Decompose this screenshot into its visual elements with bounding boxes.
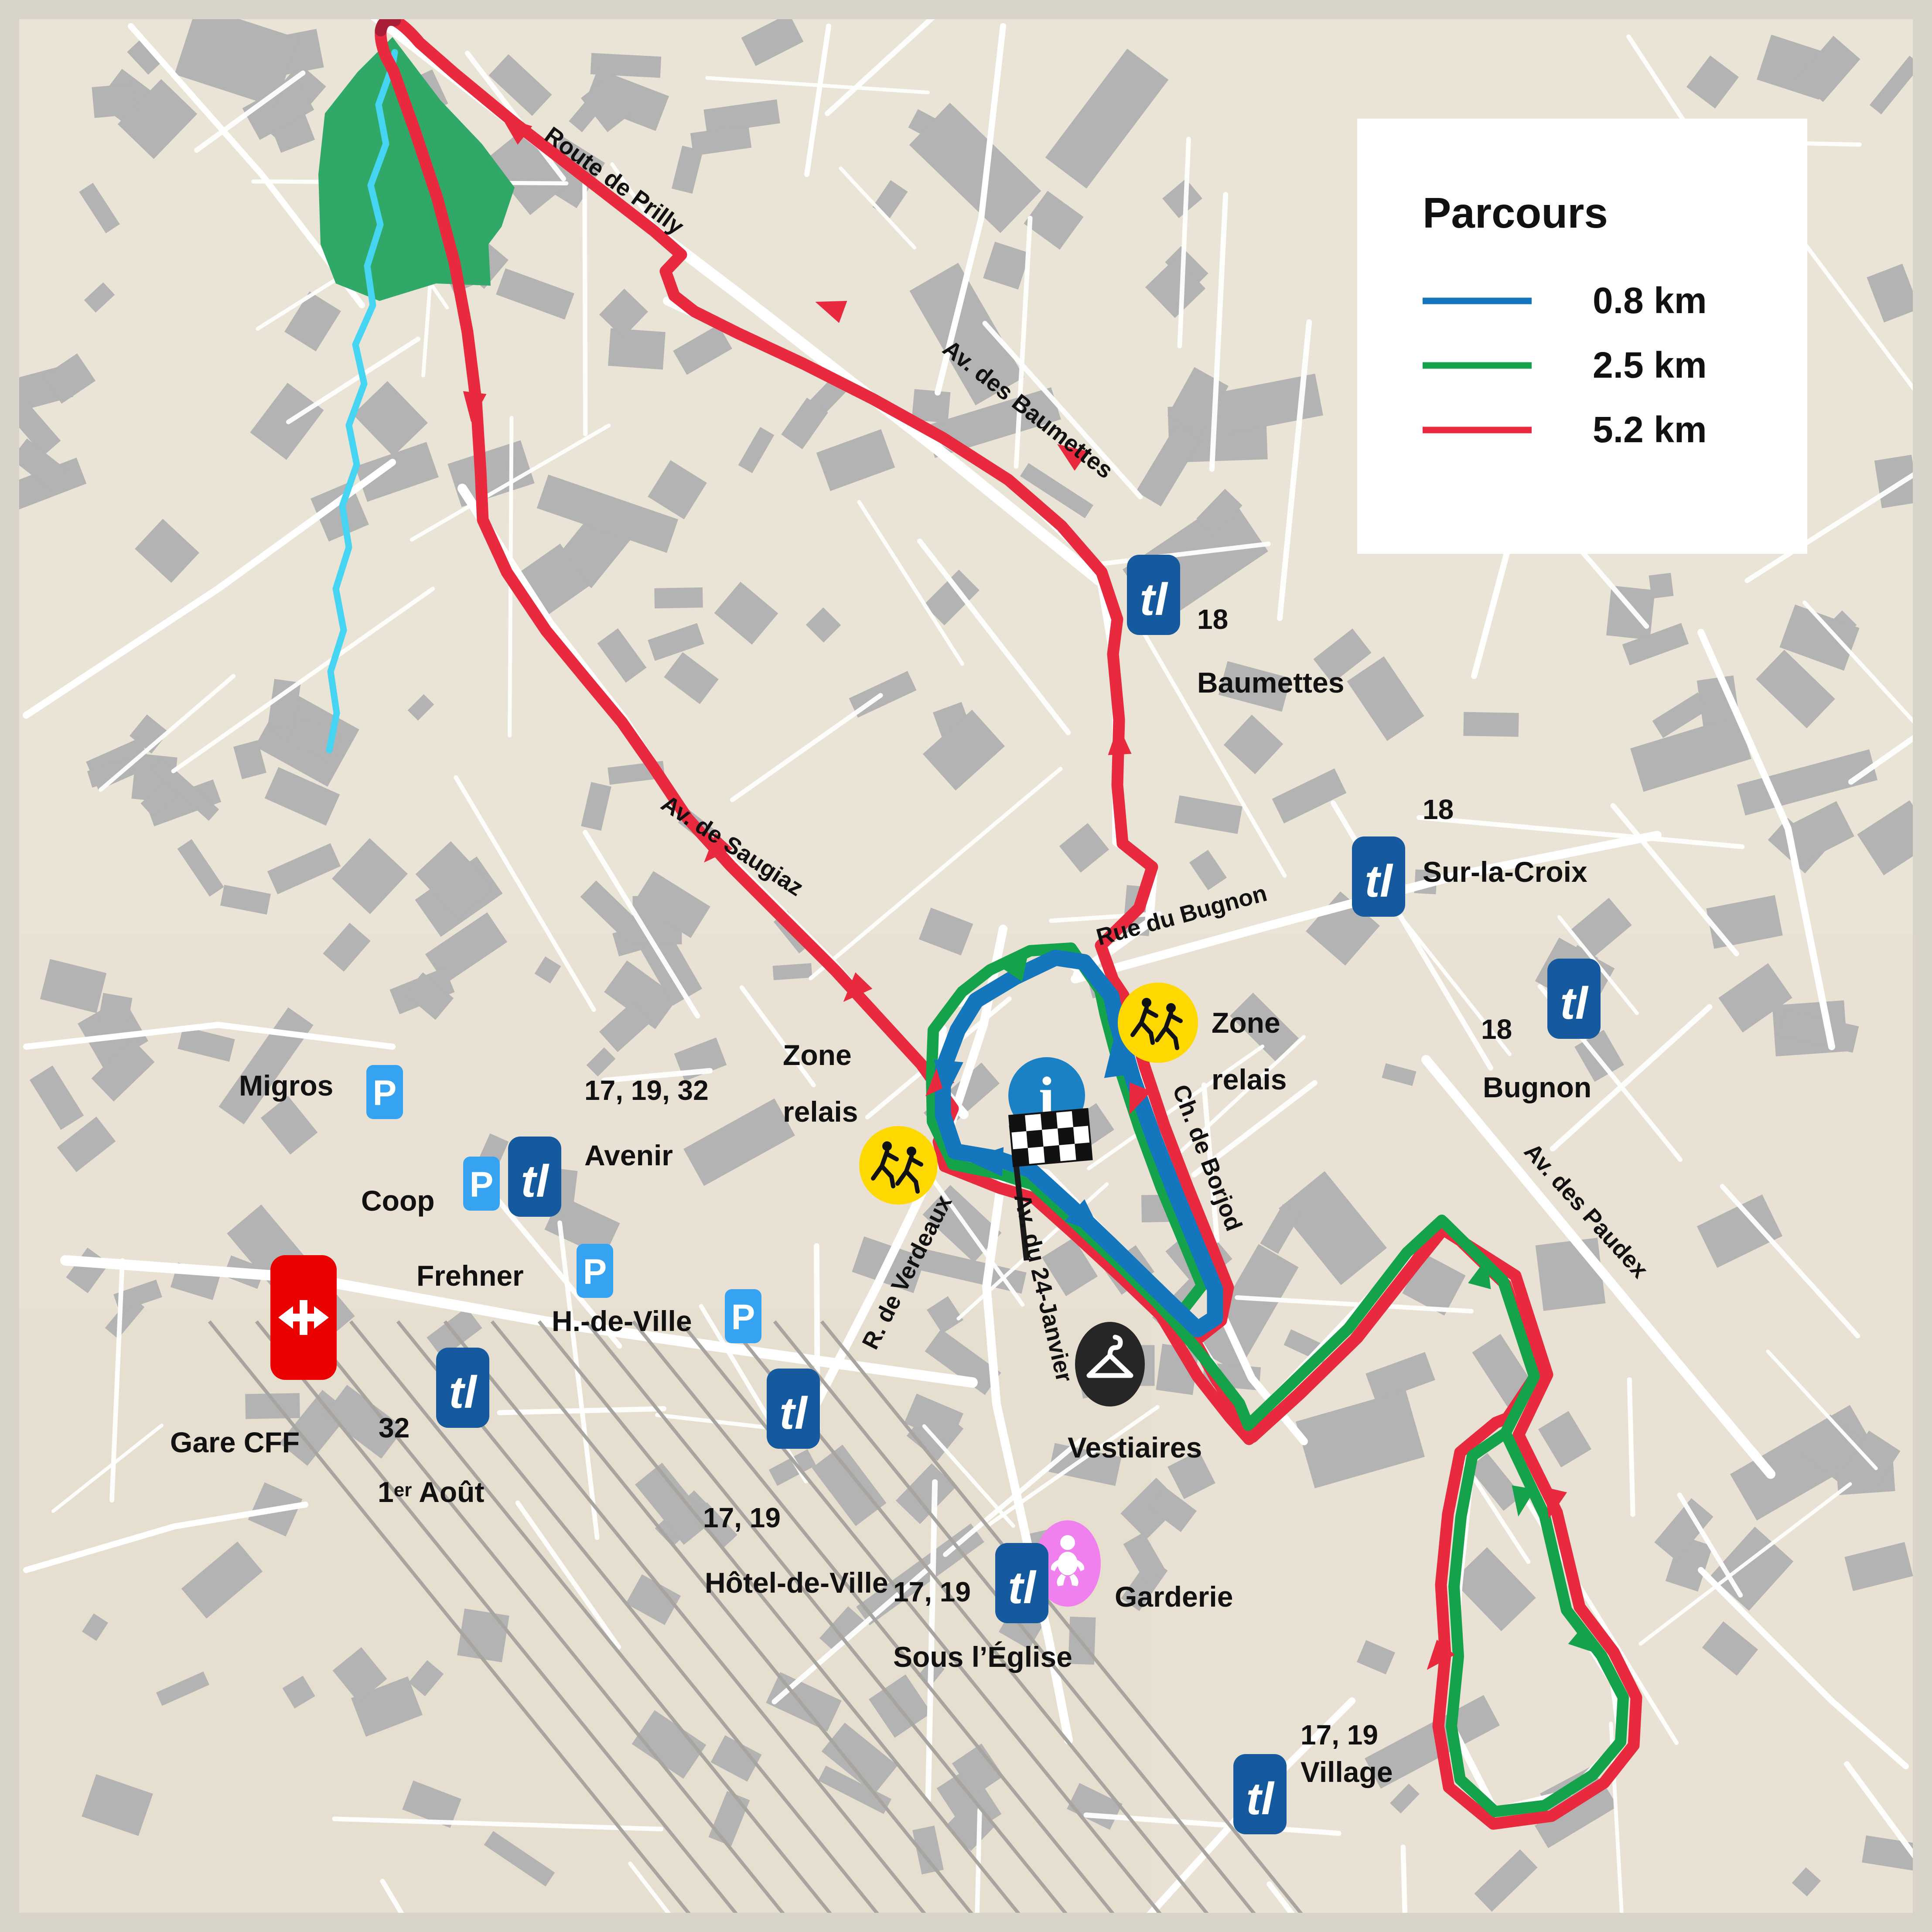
stop-sous-leglise-lines: 17, 19 [893, 1576, 971, 1608]
svg-text:tl: tl [1008, 1563, 1037, 1613]
vestiaires-label: Vestiaires [1068, 1431, 1202, 1464]
svg-text:tl: tl [1365, 856, 1393, 907]
svg-text:tl: tl [521, 1156, 550, 1207]
legend-dist-green: 2.5 km [1593, 345, 1707, 386]
stop-sur-la-croix-name: Sur-la-Croix [1423, 856, 1587, 888]
zone-relais-right-line1: Zone [1212, 1007, 1280, 1039]
svg-text:tl: tl [449, 1367, 478, 1418]
tl-stop-1er-aout-icon: tl [436, 1348, 489, 1428]
gare-cff-label: Gare CFF [170, 1426, 300, 1458]
vestiaires-icon [1075, 1322, 1145, 1406]
svg-text:tl: tl [1140, 574, 1168, 625]
legend: Parcours 0.8 km 2.5 km 5.2 km [1357, 119, 1807, 554]
svg-text:P: P [583, 1252, 607, 1292]
tl-stop-bugnon-icon: tl [1547, 959, 1601, 1039]
svg-text:tl: tl [1560, 978, 1589, 1029]
stop-bugnon-lines: 18 [1481, 1014, 1512, 1045]
parking-hdv-label: H.-de-Ville [552, 1305, 692, 1337]
course-map: i [0, 0, 1932, 1932]
stop-baumettes-lines: 18 [1197, 604, 1228, 635]
zone-relais-right-line2: relais [1212, 1063, 1287, 1096]
svg-text:P: P [470, 1165, 494, 1205]
tl-stop-avenir-icon: tl [508, 1137, 561, 1217]
stop-1er-aout-lines: 32 [379, 1412, 410, 1444]
stop-avenir-name: Avenir [584, 1139, 673, 1171]
stop-village-lines: 17, 19 [1301, 1719, 1378, 1751]
tl-stop-sous-leglise-icon: tl [995, 1543, 1048, 1623]
stop-hdv-name: Hôtel-de-Ville [705, 1567, 888, 1599]
stop-avenir-lines: 17, 19, 32 [584, 1075, 709, 1106]
parking-coop-label: Coop [361, 1184, 435, 1217]
legend-dist-red: 5.2 km [1593, 409, 1707, 450]
parking-migros-icon: P [366, 1065, 403, 1119]
parking-frehner-icon: P [577, 1244, 613, 1298]
tl-stop-baumettes-icon: tl [1127, 555, 1180, 635]
stop-1er-aout-name: 1er Août [378, 1476, 484, 1508]
stop-baumettes-name: Baumettes [1197, 666, 1344, 699]
zone-relais-left-line2: relais [783, 1096, 858, 1128]
legend-box [1357, 119, 1807, 554]
tl-stop-village-icon: tl [1233, 1754, 1287, 1834]
legend-dist-blue: 0.8 km [1593, 280, 1707, 321]
svg-text:tl: tl [1246, 1774, 1275, 1824]
parking-frehner-label: Frehner [416, 1260, 524, 1292]
parking-migros-label: Migros [239, 1069, 333, 1102]
zone-relais-left-icon [859, 1126, 938, 1205]
svg-text:P: P [373, 1073, 397, 1113]
stop-village-name: Village [1301, 1756, 1393, 1788]
zone-relais-right-icon [1118, 983, 1198, 1063]
parking-coop-icon: P [463, 1157, 500, 1211]
stop-bugnon-name: Bugnon [1483, 1071, 1591, 1103]
tl-stop-sur-la-croix-icon: tl [1352, 836, 1405, 917]
svg-text:tl: tl [779, 1388, 808, 1439]
stop-sur-la-croix-lines: 18 [1423, 794, 1454, 825]
parking-hdv-icon: P [725, 1289, 761, 1343]
legend-title: Parcours [1423, 189, 1608, 237]
garderie-label: Garderie [1115, 1580, 1233, 1613]
map-canvas: i [0, 0, 1932, 1932]
svg-text:P: P [731, 1297, 755, 1337]
zone-relais-left-line1: Zone [783, 1039, 852, 1071]
sbb-station-icon [270, 1255, 337, 1380]
stop-sous-leglise-name: Sous l’Église [893, 1641, 1072, 1673]
tl-stop-hotel-de-ville-icon: tl [767, 1369, 820, 1449]
stop-hdv-lines: 17, 19 [703, 1502, 781, 1533]
